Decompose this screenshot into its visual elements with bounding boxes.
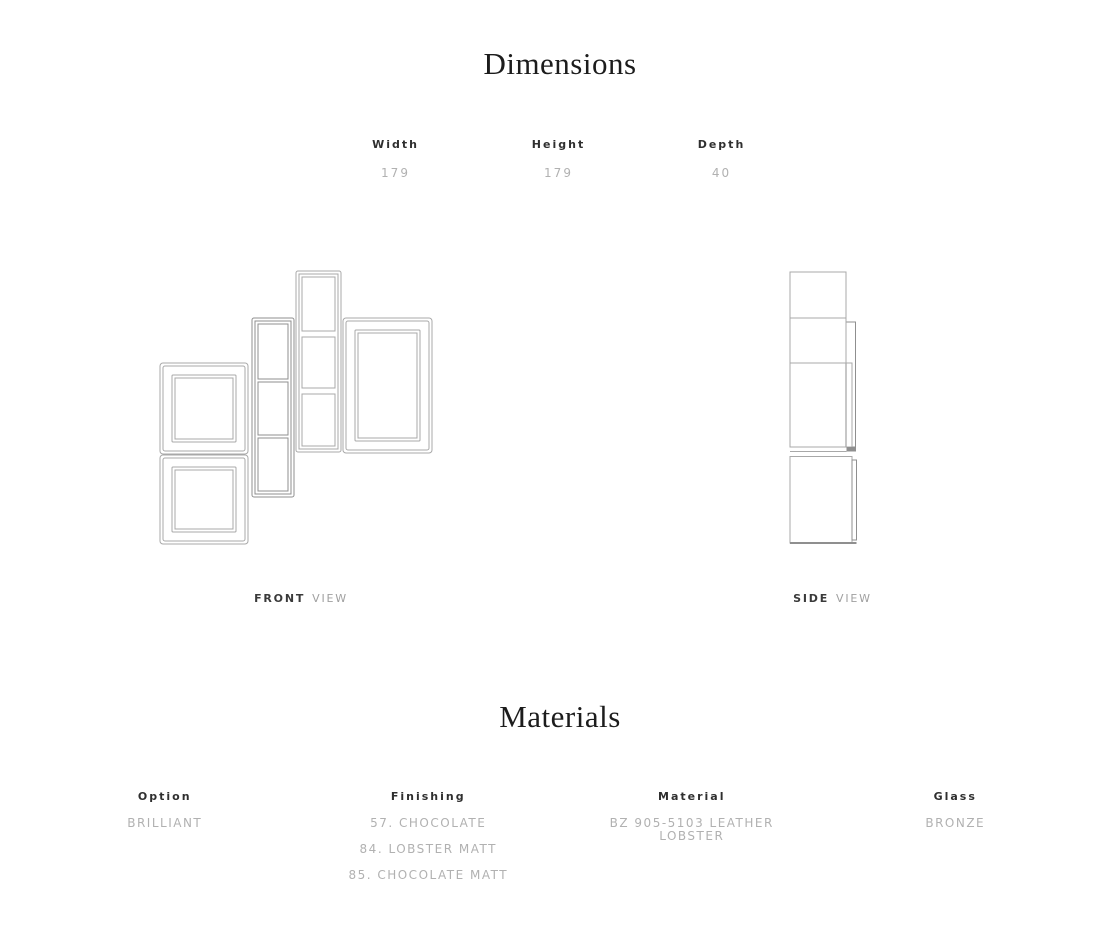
materials-table: Option BRILLIANT Finishing 57. CHOCOLATE…	[33, 790, 1087, 895]
materials-value: BRILLIANT	[33, 817, 297, 830]
side-box-2	[790, 318, 846, 363]
side-depth-strip-lower	[852, 460, 857, 540]
spec-value: 179	[477, 166, 640, 180]
materials-column-header: Material	[560, 790, 824, 803]
front-module-square-bottom	[160, 455, 248, 544]
materials-column-header: Option	[33, 790, 297, 803]
front-module-square-top	[160, 363, 248, 454]
side-box-1	[790, 272, 846, 318]
dimensions-section-title: Dimensions	[0, 46, 1120, 82]
spec-value: 179	[314, 166, 477, 180]
front-view-caption-type: VIEW	[312, 592, 348, 605]
side-box-4	[790, 457, 852, 544]
spec-column-depth: Depth 40	[640, 138, 803, 180]
materials-column-glass: Glass BRONZE	[824, 790, 1088, 895]
spec-label: Height	[477, 138, 640, 151]
materials-value: 85. CHOCOLATE MATT	[297, 869, 561, 882]
materials-value: 84. LOBSTER MATT	[297, 843, 561, 856]
spec-label: Depth	[640, 138, 803, 151]
front-module-large	[343, 318, 432, 453]
front-view-drawing	[150, 260, 440, 550]
front-module-column-middle	[252, 318, 294, 497]
materials-column-finishing: Finishing 57. CHOCOLATE 84. LOBSTER MATT…	[297, 790, 561, 895]
spec-column-height: Height 179	[477, 138, 640, 180]
spec-label: Width	[314, 138, 477, 151]
spec-value: 40	[640, 166, 803, 180]
front-module-column-tall	[296, 271, 341, 452]
side-view-caption-type: VIEW	[836, 592, 872, 605]
side-depth-strip-upper	[846, 322, 856, 447]
materials-column-header: Glass	[824, 790, 1088, 803]
materials-column-option: Option BRILLIANT	[33, 790, 297, 895]
materials-column-header: Finishing	[297, 790, 561, 803]
side-view-caption: SIDEVIEW	[752, 592, 913, 605]
materials-value: 57. CHOCOLATE	[297, 817, 561, 830]
dimensions-spec-table: Width 179 Height 179 Depth 40	[314, 138, 803, 180]
materials-column-material: Material BZ 905-5103 LEATHER LOBSTER	[560, 790, 824, 895]
front-view-caption-label: FRONT	[254, 592, 305, 605]
side-view-drawing	[780, 260, 870, 550]
side-gap-block	[847, 447, 857, 452]
spec-column-width: Width 179	[314, 138, 477, 180]
front-view-caption: FRONTVIEW	[221, 592, 381, 605]
materials-value: BRONZE	[824, 817, 1088, 830]
side-view-caption-label: SIDE	[793, 592, 829, 605]
side-module-stack	[790, 272, 857, 543]
materials-section-title: Materials	[0, 699, 1120, 735]
product-spec-page: Dimensions Width 179 Height 179 Depth 40	[0, 0, 1120, 937]
side-box-3	[790, 363, 852, 447]
materials-value: BZ 905-5103 LEATHER LOBSTER	[604, 817, 779, 843]
